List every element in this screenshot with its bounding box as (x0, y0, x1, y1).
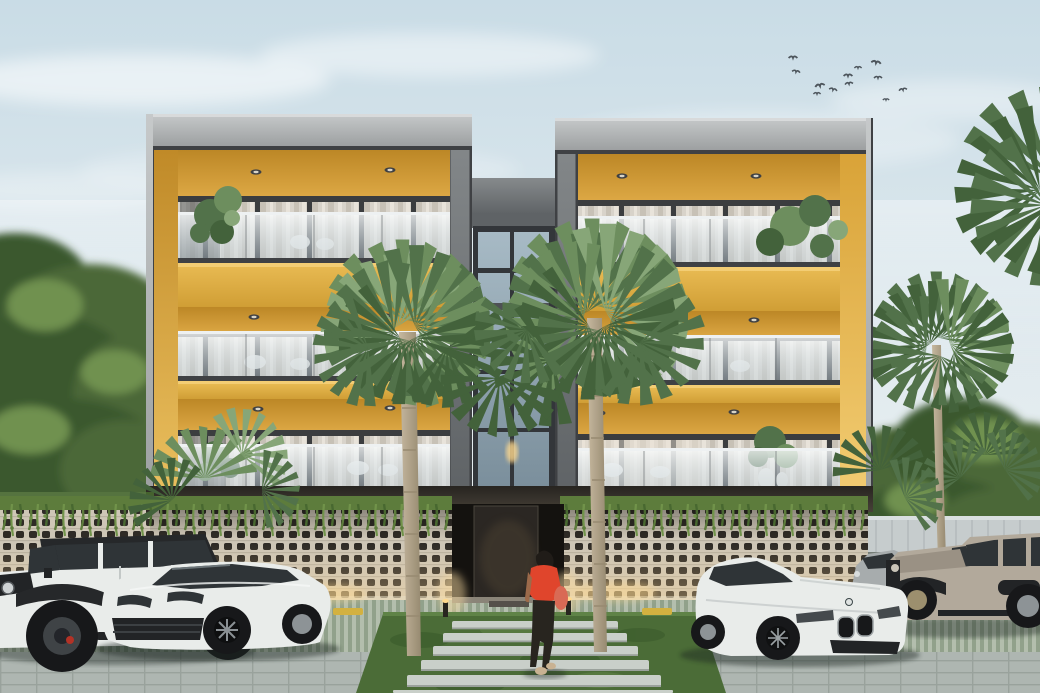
bird-icon (874, 77, 882, 79)
bmw-kidney-grille (857, 615, 873, 636)
bollard-light (442, 599, 449, 617)
person-bag (554, 586, 568, 610)
vehicle-porsche-cayenne (96, 562, 340, 661)
bmw-kidney-grille (838, 617, 854, 638)
downlight-icon (385, 405, 396, 410)
person-shoe (535, 667, 547, 675)
bird-icon (813, 93, 820, 94)
bird-icon (844, 74, 853, 76)
downlight-icon (729, 409, 740, 414)
downlight-icon (385, 167, 396, 172)
porsche-grille (112, 618, 204, 640)
bird-icon (883, 99, 889, 100)
downlight-icon (751, 173, 762, 178)
bird-icon (789, 56, 798, 58)
downlight-icon (249, 314, 260, 319)
sedan-headlight (854, 571, 860, 577)
wing-left-corner-trim (146, 114, 153, 492)
rendering-canvas (0, 0, 1040, 693)
hanging-vines (0, 492, 868, 540)
bmw-lower-intake (830, 640, 900, 654)
downlight-icon (253, 406, 264, 411)
bird-icon (854, 67, 861, 68)
person-shoe (546, 663, 556, 670)
downlight-icon (251, 169, 262, 174)
downlight-icon (617, 173, 628, 178)
glass-balustrade (578, 451, 840, 490)
doormat (489, 601, 529, 607)
tan-jeep-headlight (891, 564, 899, 572)
jeep-mirror (44, 568, 52, 578)
jeep-headlight (2, 582, 14, 594)
tower-interior-light (506, 441, 518, 463)
wing-right-roof-fascia (555, 118, 873, 150)
wing-left-roof-fascia (146, 114, 472, 146)
bmw-roundel (846, 599, 853, 606)
downlight-icon (749, 317, 760, 322)
balcony-ceiling (578, 154, 840, 208)
